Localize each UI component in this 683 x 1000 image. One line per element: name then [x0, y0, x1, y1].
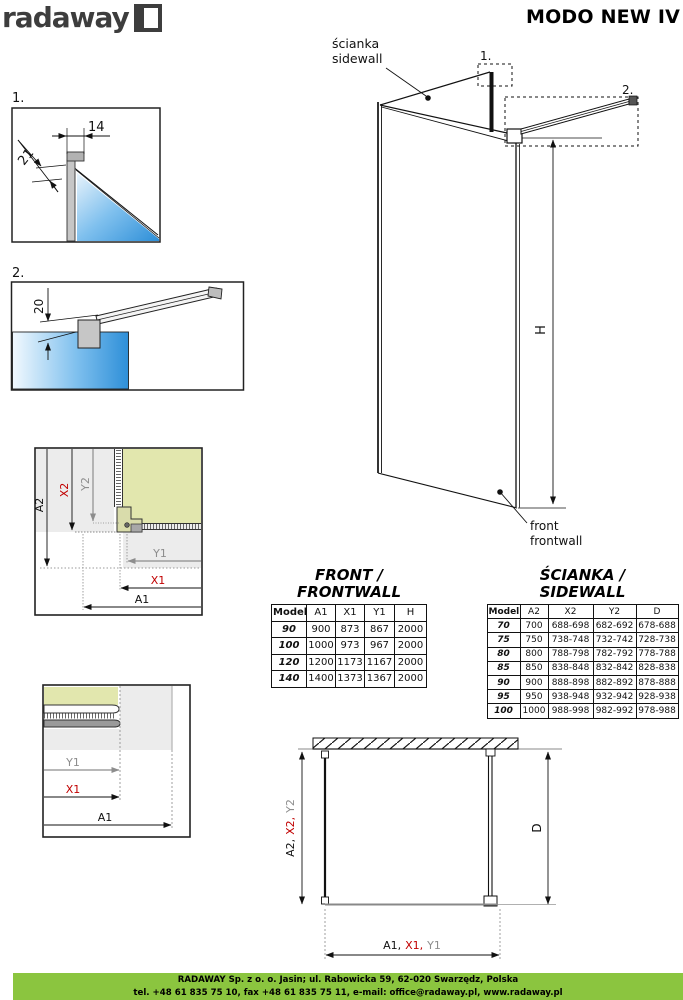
- sidewall-wall-profile: [490, 72, 494, 132]
- page-title: MODO NEW IV: [526, 6, 680, 28]
- frontwall-glass-plan: [484, 749, 497, 906]
- sidewall-glass-plan: [322, 751, 329, 904]
- table-header-row: Model A2 X2 Y2 D: [487, 605, 678, 619]
- logo-square-icon: [134, 4, 162, 32]
- radaway-logo: radaway: [2, 4, 162, 32]
- footer-bar: RADAWAY Sp. z o. o. Jasin; ul. Rabowicka…: [13, 973, 683, 1000]
- plan-overall-drawing: A2,X2,Y2 D A1,X1,Y1: [280, 732, 580, 967]
- dim-a1-label: A1: [135, 593, 150, 606]
- detail-2-support-bar-drawing: 2. 20: [10, 262, 245, 394]
- dimension-H: [518, 138, 602, 508]
- bar-wall-anchor: [629, 96, 637, 105]
- table-row: 95 950 938-948 932-942 928-938: [487, 690, 678, 704]
- dim-y1-label: Y1: [65, 756, 80, 769]
- dim-x1-label: X1: [66, 783, 81, 796]
- front-table-title: FRONT / FRONTWALL: [266, 567, 432, 600]
- wall-hatch: [313, 738, 518, 749]
- plan-edge-drawing: Y1 X1 A1: [40, 682, 195, 842]
- outside-zone-under: [44, 729, 172, 750]
- sidewall-leader-line: [386, 68, 426, 96]
- dim-H-label: H: [534, 325, 549, 335]
- glass-panel-edge: [13, 332, 129, 389]
- front-table-block: FRONT / FRONTWALL Model A1 X1 Y1 H 90 90…: [266, 567, 432, 688]
- table-row: 140 1400 1373 1367 2000: [272, 671, 427, 688]
- bar-clamp-bracket: [78, 320, 100, 348]
- dim-a1-label: A1: [98, 811, 113, 824]
- datasheet-page: radaway MODO NEW IV 1. 14: [0, 0, 683, 1000]
- wall-profile-block: [486, 749, 495, 756]
- isometric-walkin-drawing: ścianka sidewall 1. 2.: [300, 30, 660, 560]
- side-table-block: ŚCIANKA / SIDEWALL Model A2 X2 Y2 D 70 7…: [485, 567, 680, 719]
- table-row: 90 900 888-898 882-892 878-888: [487, 675, 678, 689]
- logo-wordmark: radaway: [2, 4, 129, 32]
- sidewall-label-en: sidewall: [332, 51, 382, 66]
- callout-1-label: 1.: [480, 49, 491, 63]
- corner-bracket: [507, 129, 522, 143]
- frontwall-label-en: front: [530, 519, 559, 533]
- detail-1-number: 1.: [12, 91, 24, 106]
- dim-x1-label: X1: [151, 574, 166, 587]
- side-table-title: ŚCIANKA / SIDEWALL: [485, 567, 680, 600]
- dim-a2-label: A2: [33, 498, 46, 513]
- table-row: 70 700 688-698 682-692 678-688: [487, 619, 678, 633]
- table-row: 75 750 738-748 732-742 728-738: [487, 633, 678, 647]
- front-dimensions-table: Model A1 X1 Y1 H 90 900 873 867 2000 100…: [271, 604, 427, 688]
- side-dimensions-table: Model A2 X2 Y2 D 70 700 688-698 682-692 …: [487, 604, 679, 719]
- frontwall-glass: [378, 102, 520, 508]
- detail-2-number: 2.: [12, 266, 24, 281]
- sidewall-leader-dot: [425, 95, 431, 101]
- dim-left-label: A2,X2,Y2: [284, 799, 297, 857]
- table-row: 100 1000 988-998 982-992 978-988: [487, 704, 678, 718]
- dim-20-label: 20: [32, 299, 46, 314]
- dim-y2-label: Y2: [79, 477, 92, 492]
- frontwall-label-en2: frontwall: [530, 534, 582, 548]
- table-header-row: Model A1 X1 Y1 H: [272, 605, 427, 622]
- table-row: 100 1000 973 967 2000: [272, 638, 427, 655]
- plan-corner-drawing: A2 X2 Y2 Y1 X1 A1: [30, 440, 210, 620]
- table-row: 85 850 838-848 832-842 828-838: [487, 661, 678, 675]
- footer-contact: tel. +48 61 835 75 10, fax +48 61 835 75…: [13, 987, 683, 1000]
- outside-zone-left: [36, 449, 114, 532]
- table-row: 90 900 873 867 2000: [272, 621, 427, 638]
- dim-14-label: 14: [88, 120, 105, 135]
- dim-bottom-label: A1,X1,Y1: [383, 939, 441, 952]
- footer-address: RADAWAY Sp. z o. o. Jasin; ul. Rabowicka…: [13, 974, 683, 987]
- dim-d-label: D: [530, 823, 544, 832]
- frontwall-leader-line: [500, 492, 527, 523]
- sidewall-label-pl: ścianka: [332, 36, 379, 51]
- support-bar-iso: [507, 96, 637, 143]
- callout-1-box: [478, 64, 512, 86]
- interior-zone: [123, 449, 201, 523]
- interior-zone-edge: [44, 687, 118, 705]
- detail-1-wall-profile-drawing: 1. 14 21: [10, 86, 162, 246]
- dim-y1-label: Y1: [152, 547, 167, 560]
- callout-2-label: 2.: [622, 83, 633, 97]
- table-row: 120 1200 1173 1167 2000: [272, 654, 427, 671]
- dim-x2-label: X2: [58, 483, 71, 498]
- table-row: 80 800 788-798 782-792 778-788: [487, 647, 678, 661]
